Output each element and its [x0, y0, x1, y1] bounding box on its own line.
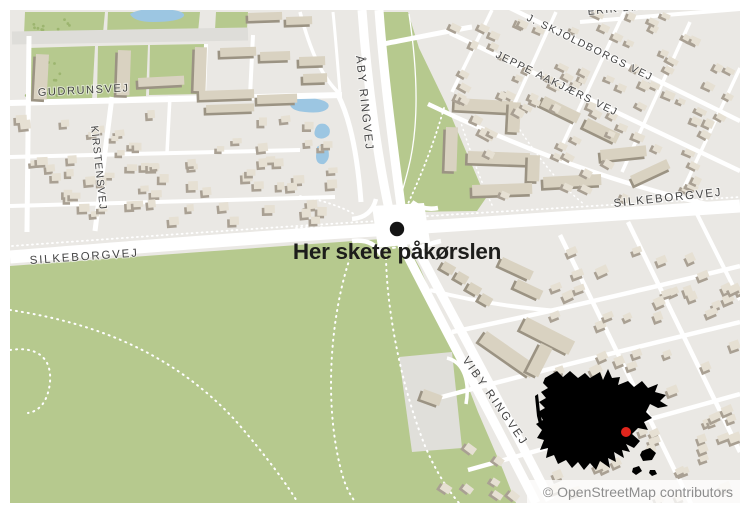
inset-location-dot [621, 427, 631, 437]
map-canvas: GUDRUNSVEJ KIRSTENSVEJ ÅBY RINGVEJ SILKE… [0, 0, 750, 512]
incident-marker-dot [390, 222, 404, 236]
incident-label: Her skete påkørslen [293, 239, 501, 264]
attribution-bar: © OpenStreetMap contributors [527, 480, 740, 503]
incident-marker [390, 222, 404, 236]
osm-attribution[interactable]: © OpenStreetMap contributors [543, 484, 733, 500]
